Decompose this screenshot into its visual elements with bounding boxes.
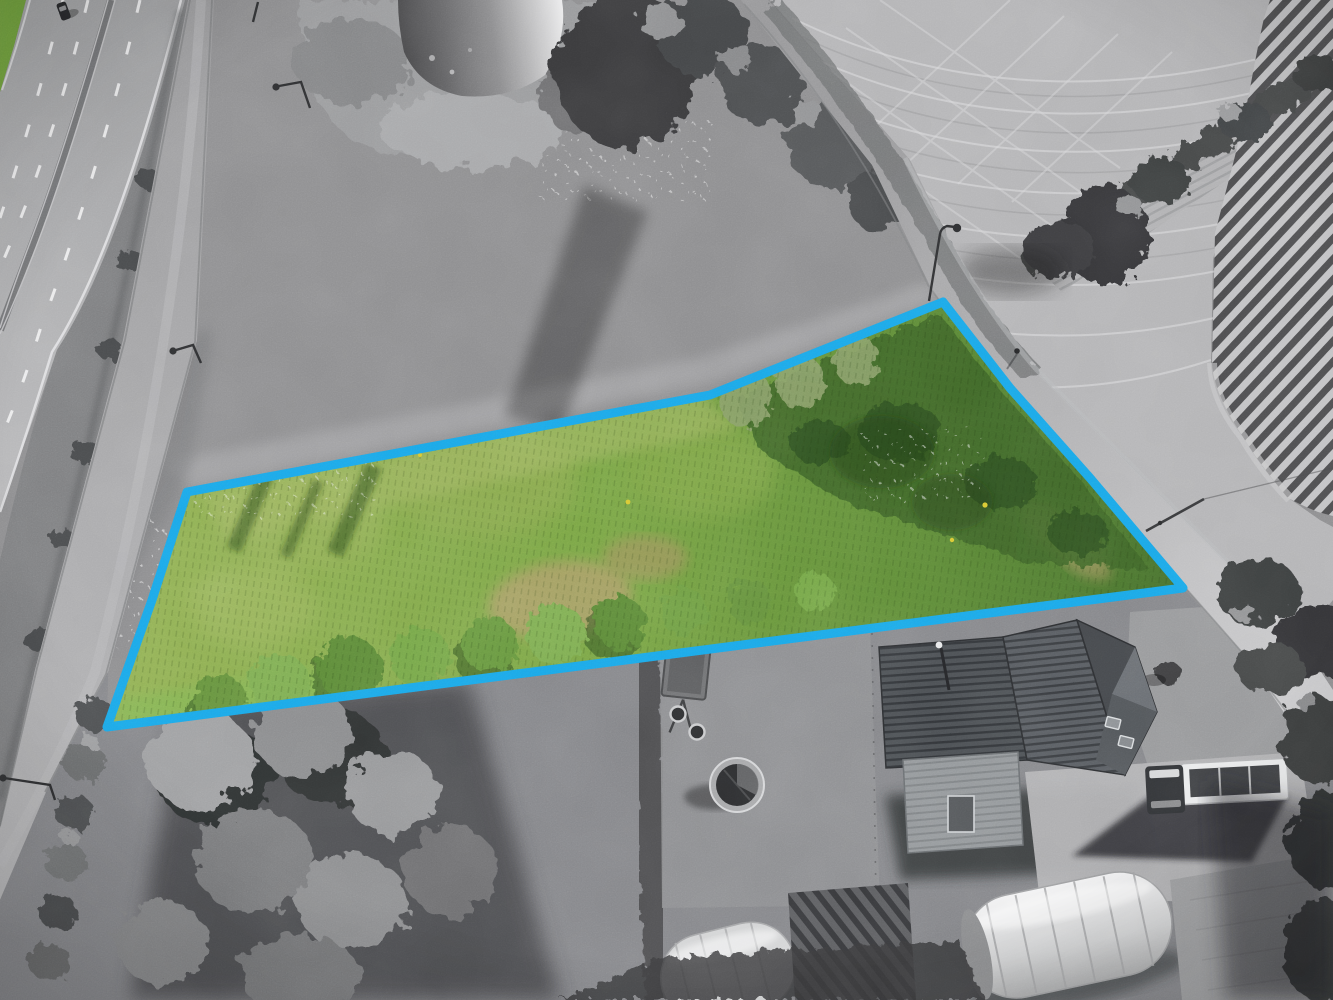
vignette xyxy=(0,0,1333,1000)
aerial-photo xyxy=(0,0,1333,1000)
aerial-photo-canvas xyxy=(0,0,1333,1000)
